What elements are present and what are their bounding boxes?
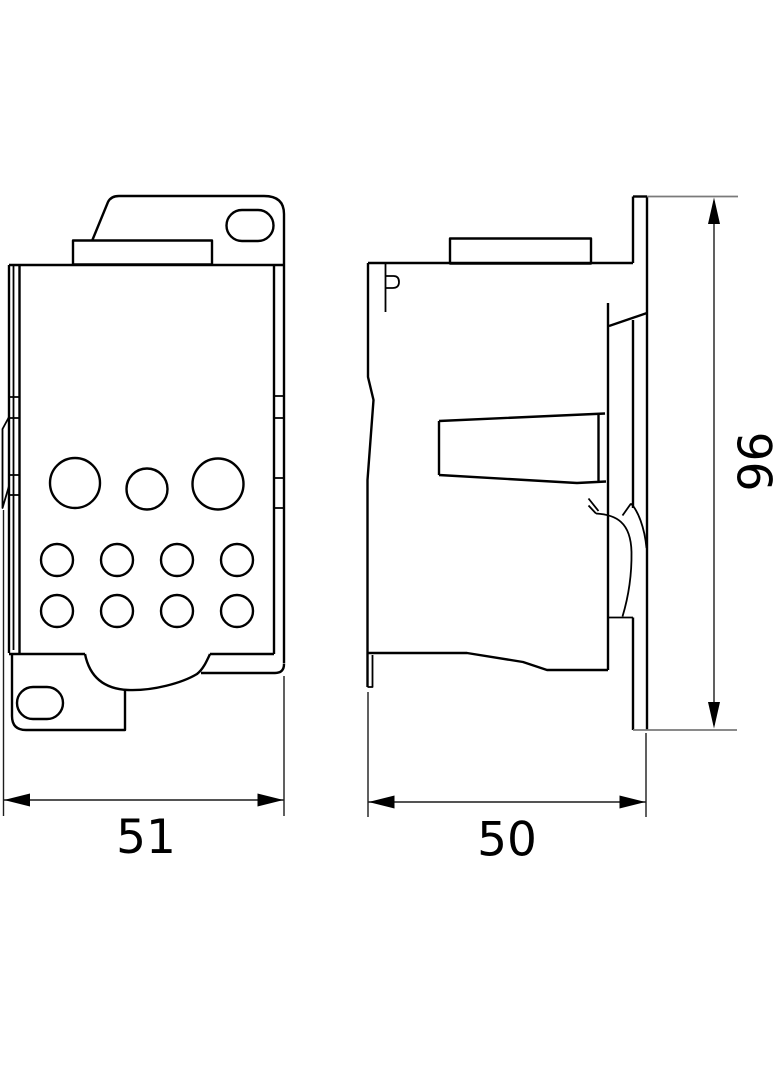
hole-small-4 — [221, 544, 253, 576]
hole-large-1 — [50, 458, 100, 508]
dimension-value-side-width: 50 — [477, 813, 537, 868]
side-left-edge — [368, 263, 374, 687]
front-top-tab — [92, 196, 284, 265]
hole-medium — [127, 469, 168, 510]
dimension-side-width: 50 — [368, 692, 646, 868]
side-latch-hook — [386, 263, 400, 312]
front-bottom-scoop — [85, 654, 210, 690]
hole-small-3 — [161, 544, 193, 576]
hole-small-6 — [101, 595, 133, 627]
side-din-clip-outer-curve — [623, 504, 647, 549]
front-bottom-tab-slot — [17, 687, 63, 719]
hole-small-7 — [161, 595, 193, 627]
arrowhead-right — [620, 796, 646, 809]
hole-small-2 — [101, 544, 133, 576]
side-bottom-edge — [368, 653, 609, 670]
hole-small-8 — [221, 595, 253, 627]
side-view — [368, 197, 648, 731]
side-top-bar — [450, 239, 591, 264]
dimension-value-front-width: 51 — [116, 810, 176, 865]
front-mounting-bar — [73, 241, 212, 265]
dimension-value-height: 96 — [726, 432, 781, 492]
technical-drawing: 51 50 96 — [0, 0, 784, 1066]
hole-small-5 — [41, 595, 73, 627]
hole-large-2 — [193, 459, 244, 510]
front-bottom-right-lip — [201, 664, 284, 673]
side-wedge — [439, 414, 606, 484]
drawing-sheet: 51 50 96 — [0, 0, 784, 1066]
arrowhead-left — [4, 794, 30, 807]
front-view — [3, 196, 285, 730]
arrowhead-up — [708, 198, 720, 225]
dimension-height: 96 — [633, 197, 781, 731]
front-top-tab-slot — [227, 210, 274, 241]
front-right-strip-notches — [274, 396, 284, 508]
hole-small-1 — [41, 544, 73, 576]
side-din-clip-barb — [589, 499, 599, 514]
din-rail — [633, 197, 647, 731]
arrowhead-right — [258, 794, 284, 807]
side-din-clip-inner-curve — [596, 514, 632, 617]
front-terminal-holes — [41, 458, 253, 627]
side-din-claw — [609, 313, 647, 326]
arrowhead-left — [369, 796, 395, 809]
arrowhead-down — [708, 702, 720, 729]
